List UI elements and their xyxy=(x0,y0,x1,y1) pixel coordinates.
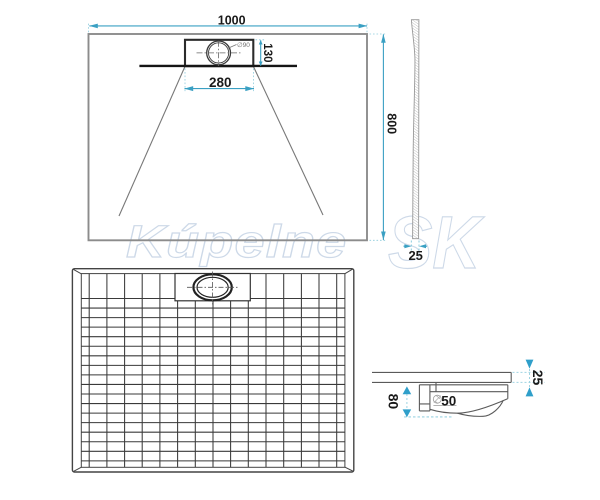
svg-text:SK: SK xyxy=(388,201,485,284)
svg-text:∅90: ∅90 xyxy=(237,42,250,49)
svg-text:Kúpelne: Kúpelne xyxy=(126,216,347,267)
svg-text:25: 25 xyxy=(408,248,422,263)
svg-text:130: 130 xyxy=(261,43,273,62)
svg-text:280: 280 xyxy=(209,75,232,90)
svg-text:800: 800 xyxy=(384,113,398,134)
svg-text:1000: 1000 xyxy=(218,13,246,27)
svg-text:80: 80 xyxy=(386,394,402,410)
svg-text:50: 50 xyxy=(441,393,456,408)
svg-text:25: 25 xyxy=(530,370,546,386)
